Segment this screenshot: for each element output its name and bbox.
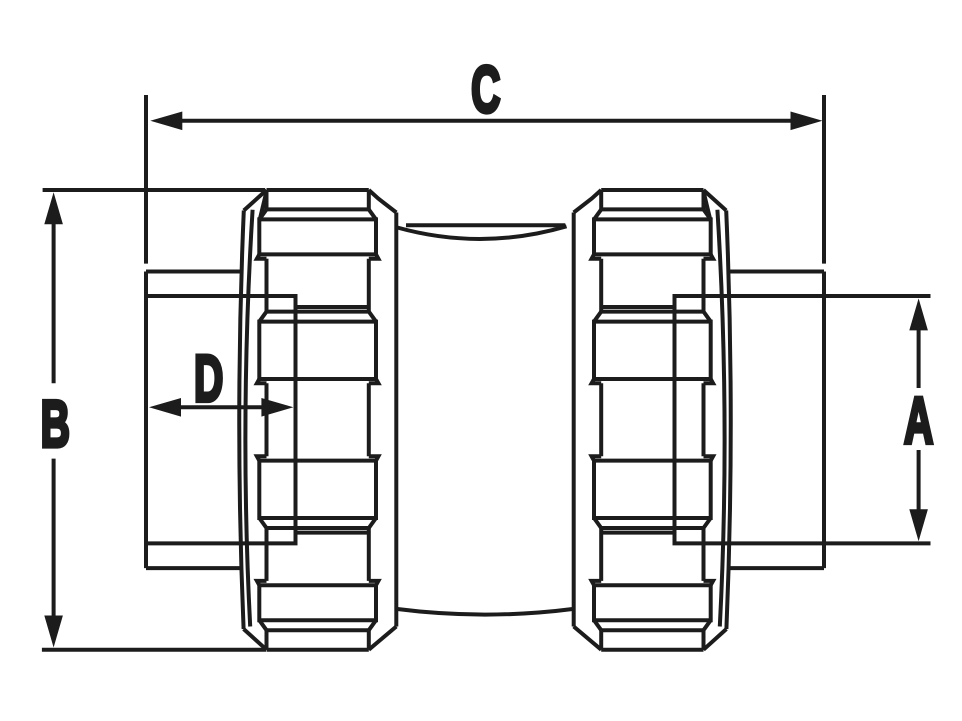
svg-text:B: B [41, 388, 70, 461]
svg-text:D: D [194, 342, 223, 415]
svg-text:C: C [471, 53, 500, 126]
svg-text:A: A [904, 384, 933, 457]
